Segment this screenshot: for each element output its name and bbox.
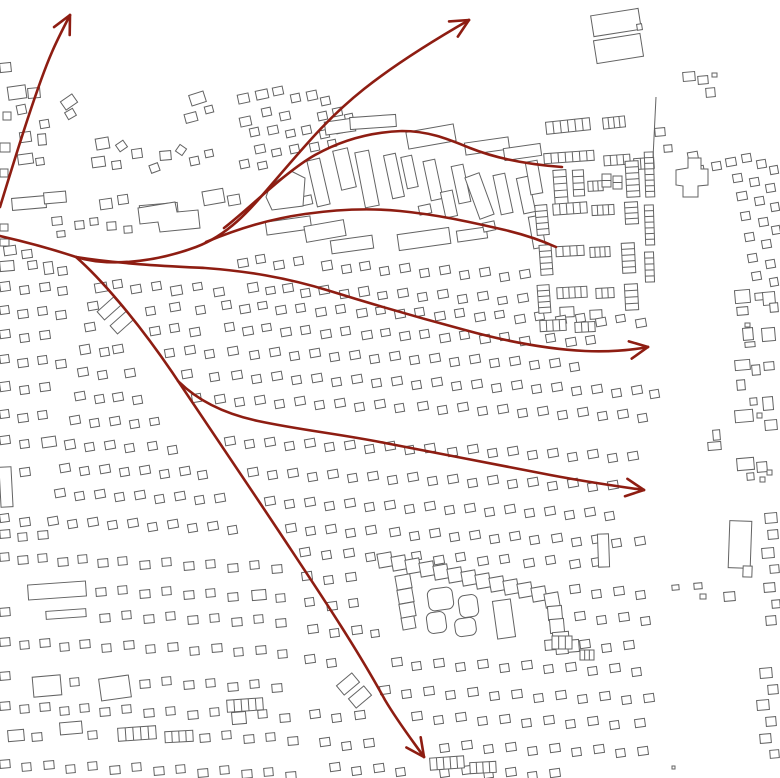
- building-footprint: [537, 285, 551, 314]
- building-footprint: [745, 323, 750, 327]
- party-wall-line: [559, 320, 560, 331]
- party-wall-line: [563, 246, 564, 256]
- building-footprint: [112, 279, 122, 288]
- building-footprint: [176, 765, 186, 774]
- building-footprint: [304, 497, 315, 507]
- building-footprint: [336, 673, 359, 695]
- building-footprint-poly: [138, 202, 200, 232]
- building-footprint: [162, 677, 172, 686]
- building-footprint: [80, 704, 90, 713]
- building-footprint: [36, 157, 45, 165]
- building-footprint: [55, 359, 66, 368]
- building-footprint: [88, 731, 98, 740]
- building-footprint: [491, 383, 501, 392]
- building-footprint: [228, 593, 239, 602]
- building-footprint: [132, 763, 142, 772]
- building-footprint: [134, 490, 145, 500]
- building-footprint: [147, 522, 157, 531]
- building-footprint: [174, 491, 185, 501]
- building-footprint: [255, 89, 269, 100]
- building-footprint: [84, 322, 95, 332]
- building-footprint: [517, 293, 528, 303]
- building-footprint: [57, 231, 66, 238]
- building-footprint: [507, 446, 518, 456]
- building-footprint: [737, 380, 746, 391]
- building-footprint: [287, 468, 298, 478]
- building-footprint: [549, 618, 564, 633]
- building-footprint: [341, 741, 351, 750]
- building-footprint: [278, 650, 288, 659]
- building-footprint: [423, 159, 443, 201]
- building-footprint: [74, 491, 84, 500]
- building-footprint: [431, 377, 442, 387]
- terraced-row: [596, 288, 614, 299]
- building-footprint: [732, 173, 742, 182]
- building-footprint: [234, 397, 244, 406]
- building-footprint: [122, 705, 132, 714]
- building-footprint: [379, 266, 389, 275]
- building-footprint: [19, 285, 29, 294]
- party-wall-line: [573, 183, 584, 184]
- building-footprint: [112, 344, 123, 354]
- building-footprint: [204, 149, 213, 158]
- building-footprint: [104, 440, 115, 450]
- terraced-row: [580, 650, 594, 660]
- building-footprint: [569, 362, 579, 371]
- building-footprint: [371, 629, 380, 637]
- building-footprint: [439, 265, 450, 275]
- party-wall-line: [623, 155, 624, 165]
- building-footprint: [655, 128, 666, 137]
- building-footprint: [119, 467, 129, 476]
- building-footprint: [457, 294, 467, 303]
- building-footprint: [249, 350, 259, 359]
- building-footprint: [737, 307, 749, 316]
- building-footprint: [467, 444, 478, 454]
- building-footprint: [640, 616, 650, 625]
- building-footprint: [21, 249, 32, 258]
- building-footprint: [184, 591, 195, 600]
- building-footprint: [220, 766, 230, 775]
- building-footprint: [419, 561, 435, 577]
- building-footprint: [304, 654, 315, 663]
- terraced-row: [602, 116, 625, 129]
- building-footprint: [359, 261, 370, 271]
- building-footprint: [57, 286, 67, 295]
- building-footprint: [200, 734, 211, 743]
- building-footprint: [595, 317, 606, 327]
- building-footprint: [159, 469, 169, 478]
- building-footprint: [228, 683, 239, 692]
- building-footprint: [264, 437, 275, 447]
- building-footprint: [190, 647, 200, 656]
- building-footprint: [499, 663, 509, 672]
- city-map: [0, 0, 780, 778]
- building-footprint: [474, 312, 485, 322]
- building-footprint: [643, 693, 654, 702]
- building-footprint: [584, 507, 595, 517]
- building-footprint: [239, 116, 252, 127]
- building-footprint: [756, 159, 766, 168]
- building-footprint: [167, 519, 178, 529]
- building-footprint: [751, 271, 761, 280]
- party-wall-line: [476, 762, 477, 773]
- building-footprint: [0, 530, 10, 539]
- building-footprint: [397, 227, 451, 250]
- party-wall-line: [593, 181, 594, 191]
- building-footprint: [0, 702, 10, 711]
- building-footprint: [124, 368, 135, 378]
- building-footprint: [454, 308, 464, 317]
- building-footprint: [20, 641, 30, 650]
- building-footprint: [397, 288, 408, 298]
- building-footprint: [740, 211, 750, 220]
- building-footprint: [391, 376, 402, 386]
- building-footprint: [437, 289, 448, 299]
- terraced-row: [553, 170, 568, 205]
- building-footprint: [37, 410, 47, 419]
- building-footprint: [447, 567, 463, 583]
- building-footprint: [170, 285, 182, 296]
- terraced-row: [540, 319, 567, 331]
- party-wall-line: [603, 205, 604, 215]
- building-footprint-poly: [676, 158, 708, 197]
- building-footprint: [765, 259, 775, 268]
- building-footprint: [591, 589, 601, 598]
- building-footprint: [569, 559, 580, 569]
- building-footprint: [181, 369, 192, 379]
- building-footprint: [227, 525, 237, 534]
- building-footprint: [411, 711, 422, 720]
- building-footprint: [300, 325, 310, 334]
- building-footprint: [517, 582, 533, 598]
- building-footprint: [160, 151, 172, 161]
- building-footprint: [257, 301, 267, 309]
- building-footprint: [409, 531, 419, 540]
- building-footprint: [307, 624, 318, 633]
- building-footprint: [464, 503, 475, 513]
- party-wall-line: [597, 205, 598, 215]
- building-footprint: [197, 470, 207, 479]
- building-footprint: [265, 286, 275, 294]
- building-footprint: [286, 772, 297, 778]
- building-footprint: [107, 222, 117, 231]
- building-footprint: [300, 288, 310, 297]
- building-footprint: [124, 641, 135, 650]
- building-footprint: [547, 481, 557, 490]
- building-footprint: [195, 305, 205, 314]
- building-footprint: [575, 321, 595, 332]
- building-footprint: [758, 217, 768, 226]
- building-footprint: [184, 345, 195, 355]
- building-footprint: [770, 202, 779, 211]
- building-footprint: [214, 394, 225, 404]
- building-footprint: [37, 306, 47, 315]
- building-footprint: [331, 713, 341, 722]
- building-footprint: [577, 407, 588, 417]
- building-footprint: [373, 763, 384, 772]
- building-footprint: [140, 680, 151, 689]
- terraced-row: [545, 118, 590, 135]
- building-footprint: [17, 413, 28, 422]
- building-footprint: [0, 381, 11, 391]
- building-footprint: [107, 520, 117, 529]
- party-wall-line: [570, 246, 571, 256]
- building-footprint: [228, 564, 239, 573]
- building-footprint: [524, 508, 534, 517]
- terraced-row: [613, 176, 622, 189]
- building-footprint: [146, 645, 156, 654]
- building-footprint: [535, 205, 550, 236]
- building-footprint: [672, 766, 675, 769]
- building-footprint: [321, 260, 332, 271]
- building-footprint: [427, 476, 437, 485]
- building-footprint: [58, 558, 69, 567]
- building-footprint: [314, 400, 324, 409]
- building-footprint: [489, 534, 499, 543]
- building-footprint: [507, 479, 517, 488]
- building-footprint: [631, 385, 642, 395]
- terraced-row: [552, 636, 572, 649]
- party-wall-line: [581, 322, 582, 332]
- terraced-row: [556, 245, 584, 256]
- building-footprint: [455, 662, 465, 671]
- building-footprint: [32, 675, 62, 697]
- building-footprint: [749, 177, 759, 186]
- building-footprint: [114, 492, 124, 501]
- party-wall-line: [625, 213, 638, 214]
- building-footprint: [32, 733, 43, 742]
- building-footprint: [604, 511, 614, 520]
- party-wall-line: [605, 247, 606, 257]
- building-footprint: [46, 609, 86, 620]
- building-footprint: [354, 710, 365, 719]
- building-footprint: [327, 469, 338, 479]
- building-footprint: [757, 413, 762, 418]
- building-footprint: [565, 719, 575, 728]
- building-footprint: [54, 488, 65, 498]
- building-footprint: [527, 771, 537, 778]
- building-footprint: [350, 114, 397, 129]
- building-footprint: [499, 554, 509, 563]
- building-footprint: [0, 608, 10, 617]
- building-footprint: [239, 304, 250, 314]
- building-footprint: [102, 644, 112, 653]
- building-footprint: [280, 714, 291, 723]
- building-footprint: [579, 639, 590, 648]
- building-footprint: [267, 470, 277, 479]
- terraced-row: [118, 726, 157, 742]
- party-wall-line: [551, 153, 552, 163]
- building-footprint: [275, 305, 286, 315]
- building-footprint: [149, 163, 160, 174]
- building-footprint: [291, 375, 301, 384]
- building-footprint: [187, 523, 197, 532]
- building-footprint: [404, 504, 414, 513]
- building-footprint: [0, 672, 10, 681]
- building-footprint: [391, 657, 402, 666]
- building-footprint: [3, 112, 11, 120]
- party-wall-line: [553, 320, 554, 331]
- building-footprint: [621, 695, 631, 704]
- building-footprint: [8, 729, 25, 741]
- building-footprint: [0, 329, 11, 338]
- building-footprint: [649, 389, 659, 398]
- party-wall-line: [627, 191, 640, 192]
- building-footprint: [517, 408, 527, 417]
- building-footprint: [0, 62, 11, 72]
- building-footprint: [553, 202, 588, 215]
- building-footprint: [22, 763, 32, 772]
- building-footprint: [91, 156, 105, 168]
- building-footprint: [127, 518, 138, 528]
- building-footprint: [0, 260, 14, 271]
- terraced-row: [544, 150, 595, 163]
- building-footprint: [401, 689, 411, 698]
- building-footprint: [634, 536, 645, 546]
- building-footprint: [344, 498, 355, 508]
- building-footprint: [596, 615, 606, 624]
- building-footprint: [511, 380, 522, 390]
- building-footprint: [244, 735, 255, 744]
- building-footprint: [599, 691, 610, 700]
- building-footprint: [129, 419, 139, 428]
- building-footprint: [445, 690, 455, 699]
- building-footprint: [206, 679, 216, 688]
- building-footprint: [38, 531, 49, 540]
- building-footprint: [242, 326, 253, 336]
- building-footprint: [664, 145, 673, 153]
- building-footprint: [0, 281, 11, 291]
- building-footprint: [306, 90, 318, 101]
- building-footprint: [38, 554, 48, 563]
- building-footprint: [60, 643, 70, 652]
- building-footprint: [389, 351, 400, 361]
- building-footprint: [124, 443, 134, 452]
- building-footprint: [27, 260, 37, 269]
- building-footprint: [44, 761, 55, 770]
- building-footprint: [247, 467, 258, 477]
- building-footprint: [364, 502, 374, 511]
- building-footprint: [206, 560, 216, 569]
- party-wall-line: [179, 731, 180, 742]
- building-footprint: [305, 526, 315, 535]
- building-footprint: [555, 690, 566, 699]
- building-footprint: [539, 245, 553, 276]
- building-footprint: [273, 260, 284, 270]
- building-footprint: [118, 726, 157, 742]
- building-footprint: [593, 33, 643, 63]
- building-footprint: [64, 439, 75, 450]
- building-footprint: [70, 678, 80, 687]
- building-footprint: [198, 769, 209, 778]
- building-footprint: [551, 382, 562, 392]
- building-footprint: [618, 612, 629, 621]
- building-footprint: [569, 584, 580, 593]
- building-footprint: [543, 664, 553, 673]
- building-footprint: [272, 86, 283, 96]
- building-footprint: [461, 740, 472, 749]
- building-footprint: [95, 137, 110, 150]
- building-footprint: [765, 183, 775, 192]
- building-footprint: [735, 359, 751, 370]
- building-footprint: [504, 504, 515, 514]
- building-footprint: [347, 473, 357, 482]
- building-footprint: [613, 586, 624, 595]
- building-footprint: [734, 289, 750, 303]
- building-footprint: [440, 190, 457, 218]
- building-footprint: [348, 686, 371, 708]
- party-wall-line: [172, 731, 173, 742]
- building-footprint: [39, 119, 49, 128]
- building-footprint: [284, 499, 294, 508]
- building-footprint: [700, 594, 706, 599]
- flow-branch-estate-lower: [206, 209, 556, 247]
- terraced-row: [572, 170, 584, 197]
- building-footprint: [140, 590, 151, 599]
- building-footprint: [765, 419, 778, 430]
- building-footprint: [132, 395, 142, 404]
- building-footprint: [330, 235, 373, 254]
- building-footprint: [439, 743, 449, 752]
- building-footprint: [601, 643, 611, 652]
- building-footprint: [94, 489, 105, 499]
- party-wall-line: [602, 288, 603, 298]
- building-footprint: [320, 96, 330, 106]
- building-footprint: [285, 523, 296, 533]
- building-footprint: [261, 323, 271, 331]
- building-footprint: [523, 558, 534, 568]
- building-footprint: [367, 471, 378, 481]
- terraced-row: [539, 245, 553, 276]
- building-footprint: [698, 76, 709, 85]
- building-footprint: [74, 391, 85, 401]
- building-footprint: [761, 239, 771, 248]
- building-footprint: [627, 451, 638, 461]
- building-footprint: [762, 397, 773, 411]
- building-footprint: [479, 267, 490, 277]
- building-footprint: [772, 600, 780, 609]
- building-footprint: [743, 566, 752, 577]
- building-footprint: [78, 555, 88, 564]
- building-footprint: [237, 93, 250, 104]
- building-footprint: [585, 335, 595, 344]
- building-footprint: [489, 576, 505, 592]
- building-footprint: [363, 738, 374, 747]
- building-footprint: [764, 362, 775, 371]
- party-wall-line: [625, 218, 638, 219]
- party-wall-line: [572, 152, 573, 162]
- building-footprint: [553, 170, 568, 205]
- building-footprint: [38, 134, 47, 146]
- building-footprint: [475, 573, 491, 589]
- building-footprint: [334, 398, 345, 408]
- building-footprint: [122, 611, 132, 620]
- building-footprint: [348, 598, 358, 607]
- building-footprint: [521, 718, 531, 727]
- party-wall-line: [546, 320, 547, 331]
- building-footprint: [227, 194, 241, 206]
- building-footprint: [89, 418, 99, 427]
- building-footprint: [100, 708, 111, 717]
- building-footprint: [227, 698, 264, 712]
- building-footprint: [66, 765, 76, 774]
- building-footprint: [116, 140, 128, 152]
- building-footprint: [118, 586, 128, 595]
- building-footprint: [467, 478, 477, 487]
- building-footprint: [264, 496, 275, 506]
- building-footprint: [257, 161, 267, 170]
